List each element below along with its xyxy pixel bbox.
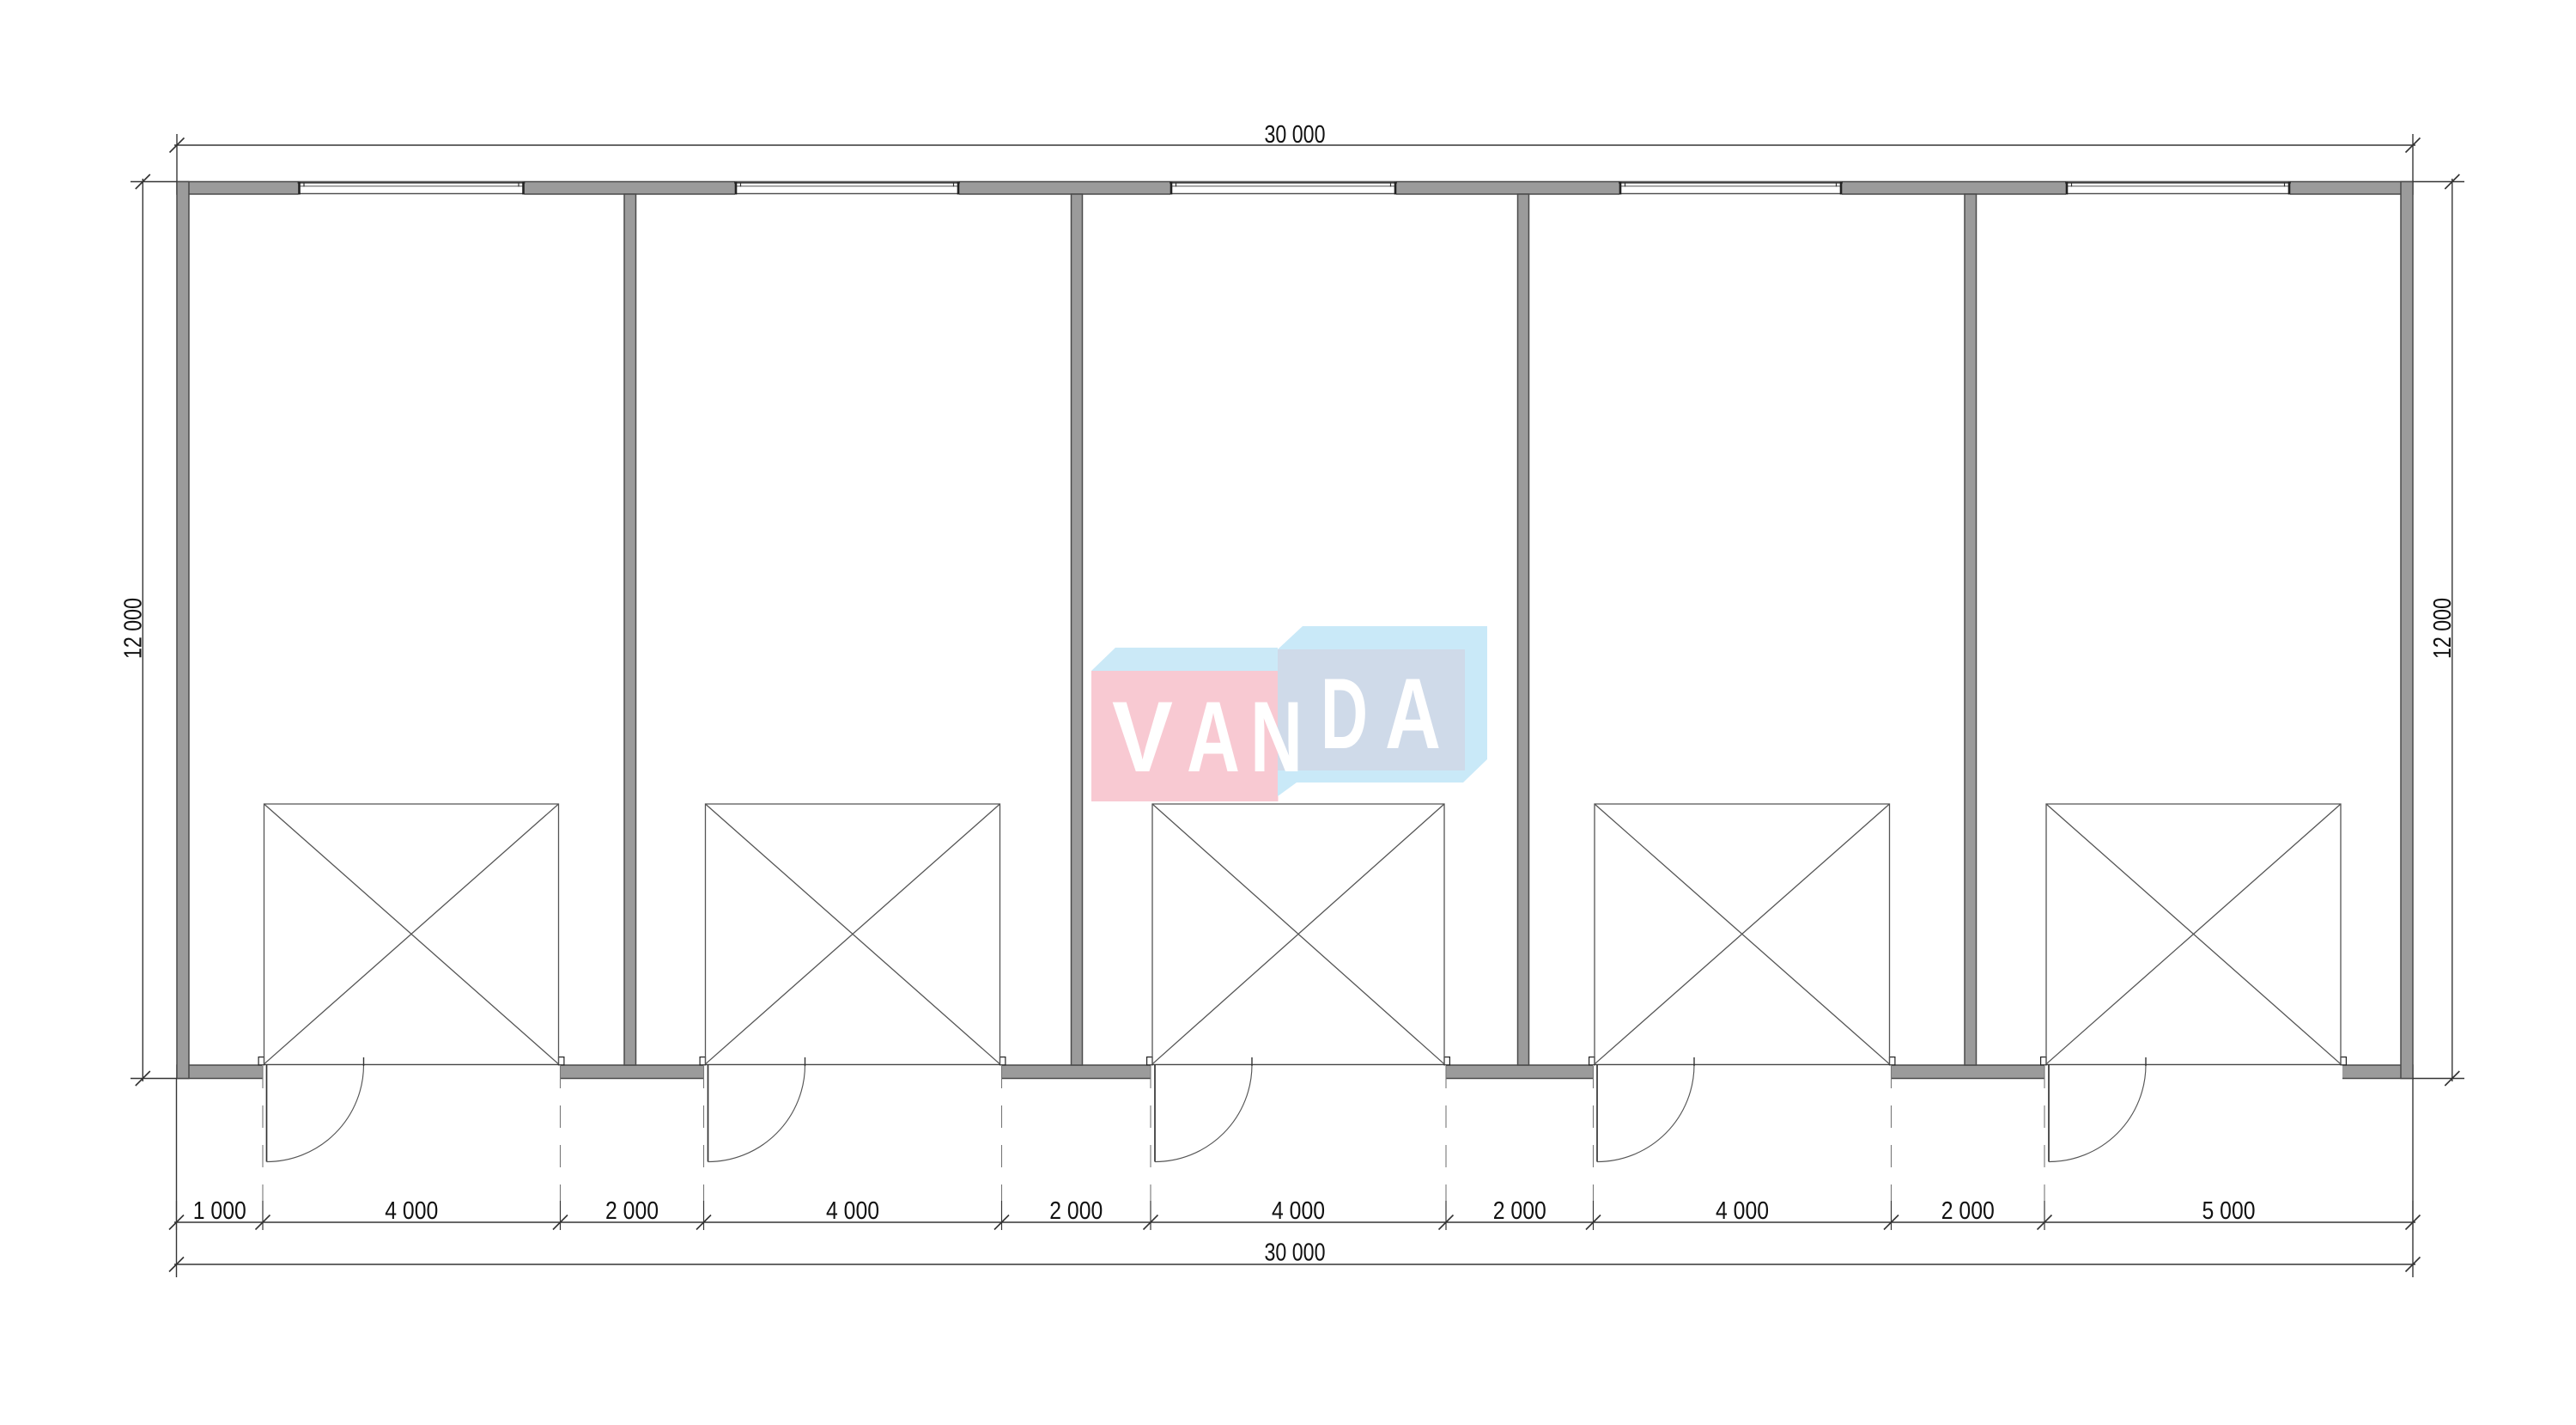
svg-text:A: A xyxy=(1187,680,1240,793)
svg-text:2 000: 2 000 xyxy=(1493,1197,1546,1225)
svg-text:N: N xyxy=(1250,680,1303,793)
svg-text:2 000: 2 000 xyxy=(605,1197,659,1225)
svg-text:4 000: 4 000 xyxy=(1272,1197,1325,1225)
svg-text:1 000: 1 000 xyxy=(193,1197,246,1225)
svg-text:4 000: 4 000 xyxy=(826,1197,879,1225)
svg-text:5 000: 5 000 xyxy=(2202,1197,2256,1225)
svg-text:D: D xyxy=(1321,657,1368,770)
svg-text:2 000: 2 000 xyxy=(1941,1197,1995,1225)
svg-text:30 000: 30 000 xyxy=(1265,1239,1326,1267)
svg-text:4 000: 4 000 xyxy=(1716,1197,1769,1225)
svg-text:A: A xyxy=(1385,657,1441,770)
svg-text:4 000: 4 000 xyxy=(385,1197,438,1225)
svg-text:2 000: 2 000 xyxy=(1049,1197,1103,1225)
svg-text:12 000: 12 000 xyxy=(2429,598,2457,659)
svg-text:30 000: 30 000 xyxy=(1265,121,1326,149)
svg-text:12 000: 12 000 xyxy=(119,598,147,659)
svg-text:V: V xyxy=(1112,680,1173,793)
